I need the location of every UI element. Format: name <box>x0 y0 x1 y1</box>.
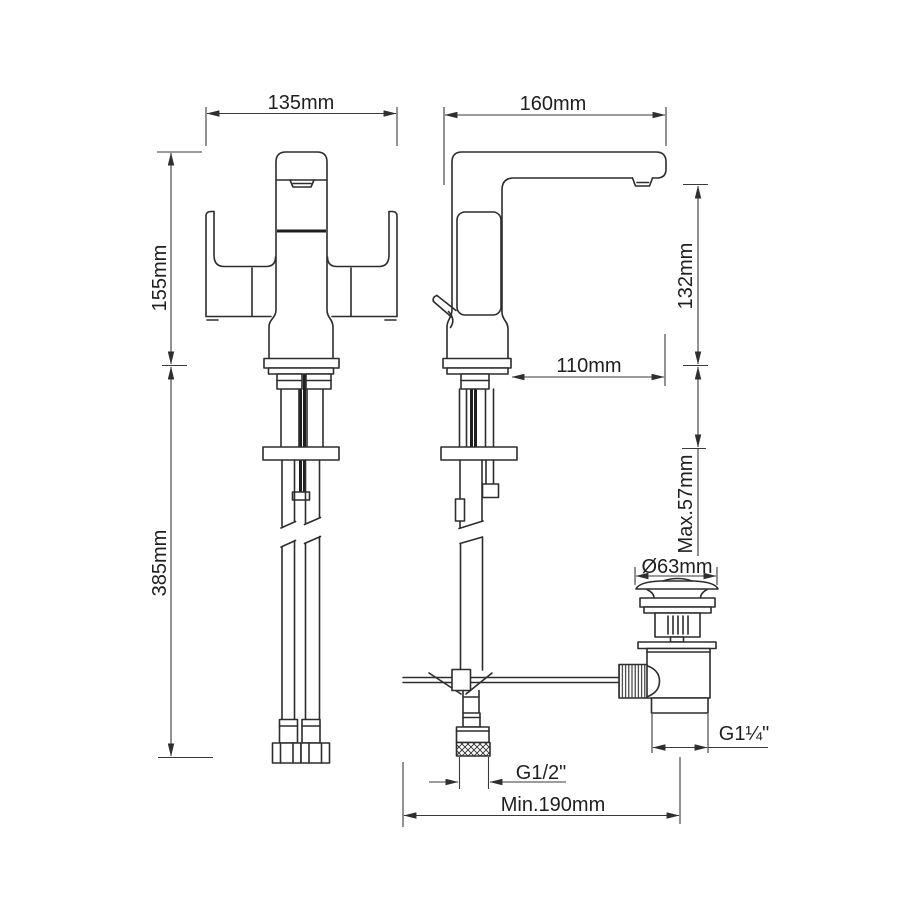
handle-left <box>206 212 276 321</box>
hose-right-nut <box>301 743 330 763</box>
lift-rod <box>403 678 619 683</box>
waste-plug-dome <box>636 581 718 589</box>
hose-left-collar <box>280 720 298 744</box>
technical-drawing-canvas: 135mm 160mm 155mm 385mm 110mm 132mm <box>0 0 922 922</box>
dim-body-height-label: 155mm <box>149 245 171 312</box>
handle-right-inner <box>328 212 390 267</box>
supply-nut-side <box>461 374 489 389</box>
threaded-stud-front <box>301 374 305 492</box>
dim-hose-length: 385mm <box>149 367 213 758</box>
dim-inlet-thread: G1/2" <box>429 757 566 789</box>
lever-top-edge <box>437 296 456 311</box>
dim-front-width-label: 135mm <box>268 92 335 114</box>
hose-right-collar <box>302 720 320 744</box>
rod-clamp <box>452 670 471 691</box>
hose-left <box>273 460 302 763</box>
dim-inlet-thread-label: G1/2" <box>516 762 566 784</box>
dim-spout-height-label: 132mm <box>675 243 697 310</box>
waste-flange <box>638 642 716 649</box>
waste-waist <box>647 590 707 599</box>
hose-clip-tab <box>456 499 465 521</box>
dim-hose-length-label: 385mm <box>149 530 171 597</box>
tail-collar <box>463 713 480 727</box>
waste-assembly <box>619 579 718 714</box>
stud-side-lower <box>486 460 494 484</box>
front-view <box>206 152 397 763</box>
dim-spout-reach: 110mm <box>512 334 665 386</box>
dim-max-deck-thickness-label: Max.57mm <box>675 455 697 554</box>
dim-depth-label: 160mm <box>520 93 587 115</box>
hose-left-lower <box>281 541 296 721</box>
handle-left-inner <box>214 212 276 267</box>
stud-nut-side <box>483 484 499 498</box>
drawing-page: 135mm 160mm 155mm 385mm 110mm 132mm <box>0 0 922 922</box>
hose-left-nut <box>273 743 302 763</box>
handle-right <box>328 212 398 321</box>
extension-line <box>444 107 666 185</box>
spout-underside <box>502 178 633 358</box>
dim-depth: 160mm <box>444 93 666 185</box>
dim-waste-thread-label: G1¼" <box>719 723 769 745</box>
tail-nut <box>457 727 490 743</box>
deck-plate-front <box>264 359 339 369</box>
cartridge-panel <box>457 212 501 315</box>
lever-tip-cap <box>433 296 437 302</box>
waste-tail <box>652 698 709 713</box>
dim-waste-thread: G1¼" <box>652 714 769 753</box>
dim-front-width: 135mm <box>206 92 397 146</box>
dim-spout-reach-label: 110mm <box>556 355 621 377</box>
dim-waste-diameter-label: Ø63mm <box>641 556 712 578</box>
waste-ring-2 <box>644 607 711 613</box>
mounting-bracket-side <box>441 447 517 460</box>
dim-body-height: 155mm <box>149 152 202 366</box>
waste-ring-1 <box>640 598 715 607</box>
deck-plate-lip-side <box>447 368 508 374</box>
dim-max-deck-thickness: Max.57mm <box>675 367 706 556</box>
tail-thread-hatch <box>457 743 491 757</box>
hose-right <box>301 460 330 763</box>
supply-tube-lower <box>460 537 483 671</box>
hose-right-lower <box>305 537 321 720</box>
extension-line <box>460 757 489 789</box>
supply-nut-left <box>277 374 302 389</box>
dim-min-rod-distance-label: Min.190mm <box>501 794 605 816</box>
rod-nut-knurl <box>619 665 647 699</box>
body-profile-side <box>447 152 666 358</box>
dim-spout-height: 132mm <box>675 185 708 366</box>
deck-plate-side <box>443 359 511 369</box>
mounting-bracket-front <box>263 447 339 460</box>
deck-plate-lip-front <box>269 368 334 374</box>
supply-nut-right <box>306 374 331 389</box>
